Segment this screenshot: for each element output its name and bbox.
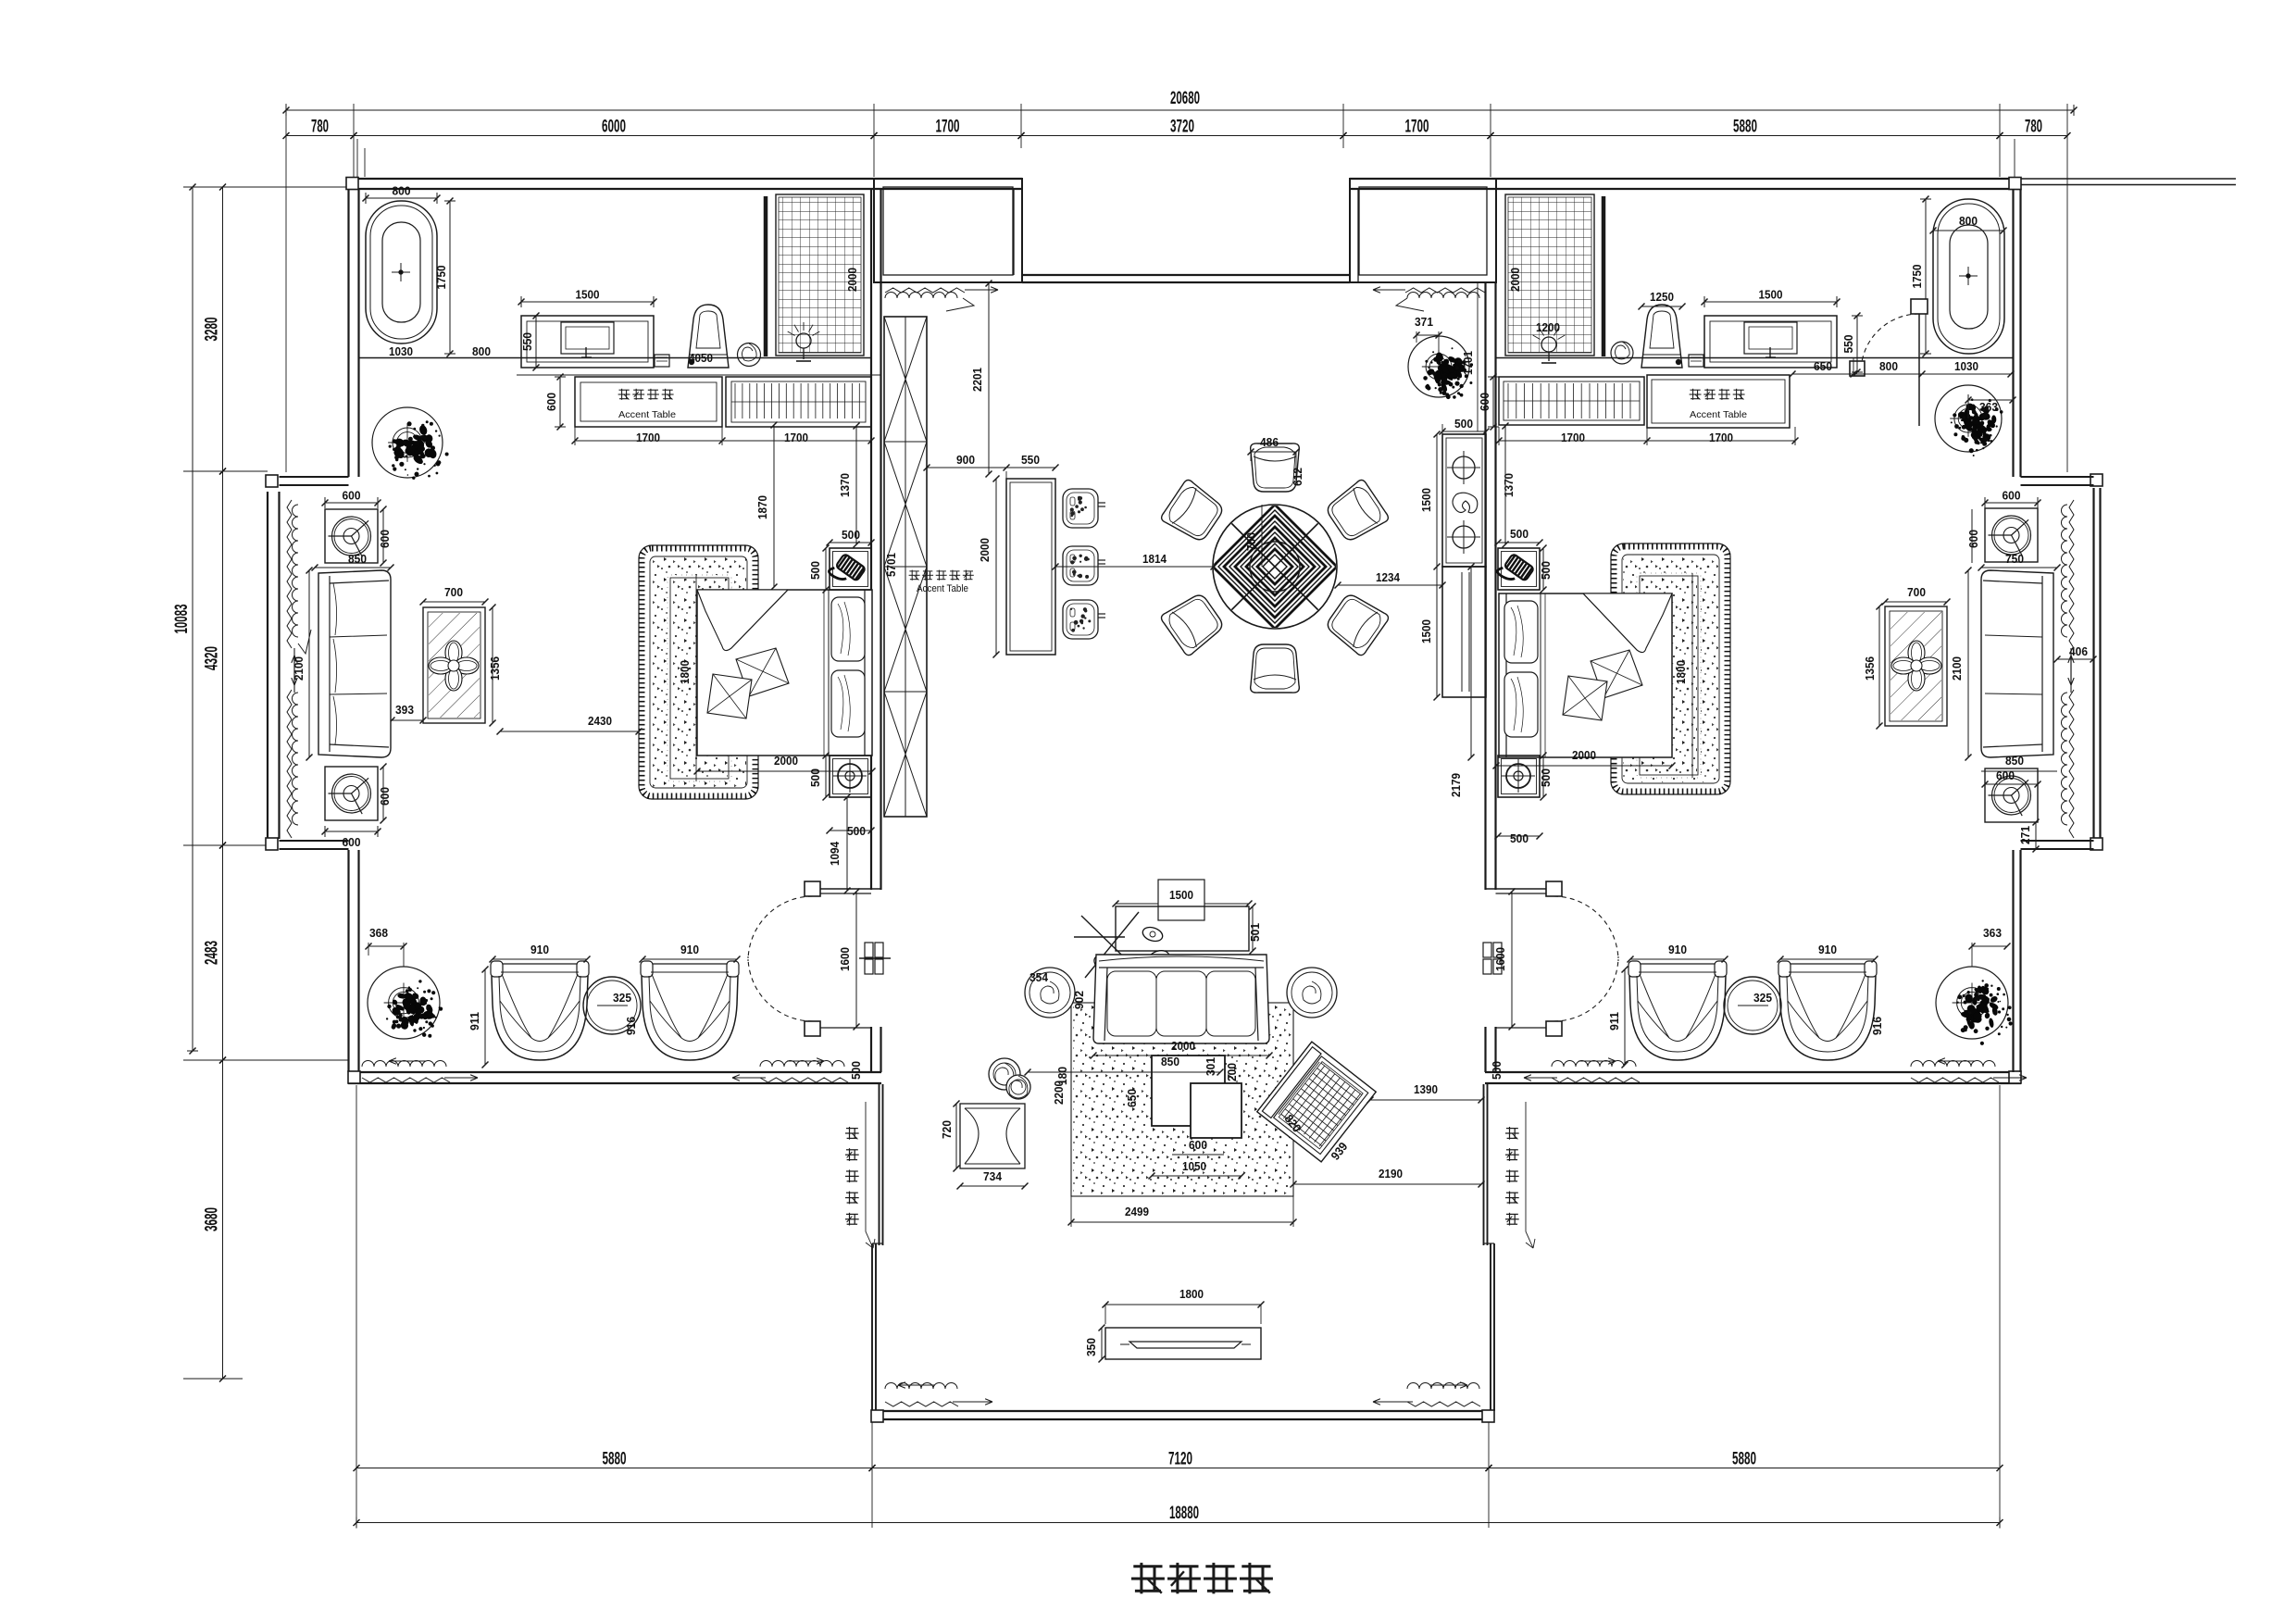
svg-text:1700: 1700 [1709, 431, 1733, 444]
svg-text:363: 363 [1983, 926, 2002, 940]
svg-text:850: 850 [2005, 754, 2024, 768]
svg-text:1814: 1814 [1142, 552, 1167, 566]
svg-text:600: 600 [1966, 530, 1980, 548]
svg-text:7120: 7120 [1168, 1449, 1192, 1469]
svg-text:5701: 5701 [884, 553, 898, 577]
svg-text:371: 371 [1415, 315, 1433, 329]
svg-text:1700: 1700 [1405, 117, 1429, 137]
svg-text:911: 911 [468, 1012, 481, 1031]
svg-text:550: 550 [520, 332, 534, 351]
svg-text:1500: 1500 [1419, 619, 1433, 643]
svg-text:301: 301 [1204, 1057, 1217, 1076]
svg-text:600: 600 [1996, 768, 2015, 782]
svg-text:406: 406 [2069, 644, 2088, 658]
svg-text:4050: 4050 [689, 351, 713, 365]
svg-text:1700: 1700 [1561, 431, 1585, 444]
svg-text:700: 700 [1244, 532, 1258, 551]
svg-text:612: 612 [1291, 468, 1304, 486]
svg-text:600: 600 [378, 787, 392, 806]
svg-text:363: 363 [1979, 400, 1998, 414]
svg-text:501: 501 [1248, 923, 1262, 942]
svg-text:2000: 2000 [1508, 268, 1522, 292]
svg-text:2100: 2100 [1950, 656, 1964, 681]
svg-text:500: 500 [842, 528, 860, 542]
svg-text:850: 850 [348, 552, 367, 566]
svg-text:2179: 2179 [1449, 773, 1463, 797]
svg-text:1234: 1234 [1376, 570, 1401, 584]
svg-text:850: 850 [1161, 1055, 1179, 1068]
svg-text:750: 750 [2005, 552, 2024, 566]
svg-text:1600: 1600 [1493, 947, 1507, 971]
svg-text:1370: 1370 [1502, 473, 1516, 497]
svg-text:2100: 2100 [292, 656, 306, 681]
svg-text:1870: 1870 [755, 495, 769, 519]
svg-text:2000: 2000 [774, 754, 798, 768]
svg-text:910: 910 [1668, 943, 1687, 956]
svg-text:1030: 1030 [389, 344, 413, 358]
svg-text:600: 600 [1478, 393, 1491, 411]
svg-text:3680: 3680 [202, 1207, 222, 1231]
svg-text:700: 700 [1907, 585, 1926, 599]
svg-text:902: 902 [1072, 991, 1086, 1009]
svg-text:5880: 5880 [1733, 117, 1757, 137]
svg-text:550: 550 [1021, 453, 1040, 467]
svg-text:5880: 5880 [1732, 1449, 1756, 1469]
svg-text:1700: 1700 [636, 431, 660, 444]
svg-text:2201: 2201 [970, 368, 984, 392]
svg-text:1800: 1800 [1179, 1287, 1204, 1301]
svg-text:180: 180 [1055, 1067, 1069, 1085]
svg-text:600: 600 [343, 489, 361, 503]
svg-text:2190: 2190 [1379, 1167, 1403, 1181]
svg-text:500: 500 [1539, 768, 1553, 787]
svg-text:2000: 2000 [1171, 1039, 1195, 1053]
svg-text:2430: 2430 [588, 714, 612, 728]
svg-text:600: 600 [544, 393, 558, 411]
svg-text:2000: 2000 [845, 268, 859, 292]
svg-text:2000: 2000 [978, 538, 992, 562]
svg-text:325: 325 [613, 991, 631, 1005]
svg-text:350: 350 [1084, 1338, 1098, 1356]
svg-text:354: 354 [1029, 970, 1049, 984]
svg-text:500: 500 [1510, 831, 1529, 845]
svg-text:6000: 6000 [602, 117, 626, 137]
svg-text:20680: 20680 [1170, 88, 1200, 108]
svg-text:Accent Table: Accent Table [917, 583, 968, 594]
svg-text:600: 600 [2003, 489, 2021, 503]
svg-text:780: 780 [311, 117, 329, 137]
svg-text:4320: 4320 [202, 646, 222, 670]
svg-text:800: 800 [393, 184, 411, 198]
svg-text:1356: 1356 [1863, 656, 1877, 681]
svg-text:1700: 1700 [936, 117, 960, 137]
svg-text:600: 600 [1189, 1138, 1207, 1152]
svg-text:2000: 2000 [1572, 748, 1596, 762]
svg-text:500: 500 [1454, 417, 1473, 431]
svg-text:916: 916 [624, 1017, 638, 1035]
svg-text:650: 650 [1125, 1089, 1139, 1107]
svg-text:500: 500 [808, 561, 822, 580]
svg-text:Accent Table: Accent Table [618, 409, 676, 420]
svg-text:500: 500 [1510, 527, 1529, 541]
svg-text:1050: 1050 [1182, 1159, 1206, 1173]
svg-text:700: 700 [444, 585, 463, 599]
svg-text:910: 910 [680, 943, 699, 956]
svg-text:325: 325 [1753, 991, 1772, 1005]
svg-text:3280: 3280 [202, 317, 222, 341]
svg-text:780: 780 [2025, 117, 2042, 137]
svg-text:1356: 1356 [488, 656, 502, 681]
svg-text:734: 734 [983, 1169, 1003, 1183]
svg-text:600: 600 [343, 835, 361, 849]
svg-text:1030: 1030 [1954, 359, 1978, 373]
svg-text:1500: 1500 [576, 288, 600, 302]
svg-text:1250: 1250 [1650, 290, 1674, 304]
svg-text:550: 550 [1841, 335, 1855, 354]
svg-text:916: 916 [1870, 1017, 1884, 1035]
svg-text:1500: 1500 [1419, 488, 1433, 512]
svg-text:1600: 1600 [838, 947, 852, 971]
svg-text:486: 486 [1260, 435, 1279, 449]
svg-text:650: 650 [1814, 359, 1832, 373]
svg-text:1800: 1800 [678, 660, 692, 684]
svg-text:500: 500 [1539, 561, 1553, 580]
svg-text:1094: 1094 [828, 841, 842, 866]
svg-text:500: 500 [1490, 1061, 1504, 1080]
svg-text:1700: 1700 [784, 431, 808, 444]
svg-text:10083: 10083 [171, 604, 192, 633]
svg-text:18880: 18880 [1169, 1503, 1199, 1523]
svg-text:5880: 5880 [603, 1449, 627, 1469]
svg-text:910: 910 [530, 943, 549, 956]
svg-text:500: 500 [849, 1061, 863, 1080]
svg-text:911: 911 [1607, 1012, 1621, 1031]
svg-text:1750: 1750 [434, 266, 448, 290]
svg-text:2499: 2499 [1125, 1205, 1149, 1218]
svg-text:393: 393 [395, 703, 414, 717]
svg-text:2483: 2483 [202, 941, 222, 965]
svg-text:1390: 1390 [1414, 1082, 1438, 1096]
svg-text:900: 900 [956, 453, 975, 467]
svg-text:500: 500 [808, 768, 822, 787]
svg-text:3720: 3720 [1170, 117, 1194, 137]
svg-text:1800: 1800 [1674, 660, 1688, 684]
svg-text:Accent Table: Accent Table [1690, 409, 1747, 420]
svg-text:800: 800 [472, 344, 491, 358]
svg-text:200: 200 [1225, 1063, 1239, 1081]
svg-text:1370: 1370 [838, 473, 852, 497]
svg-text:1500: 1500 [1169, 888, 1193, 902]
svg-text:910: 910 [1818, 943, 1837, 956]
svg-text:368: 368 [369, 926, 388, 940]
svg-text:1500: 1500 [1759, 288, 1783, 302]
svg-text:800: 800 [1879, 359, 1898, 373]
svg-text:800: 800 [1959, 214, 1978, 228]
svg-text:271: 271 [2018, 826, 2032, 844]
svg-text:1750: 1750 [1910, 265, 1924, 289]
svg-text:720: 720 [940, 1120, 954, 1139]
svg-text:1701: 1701 [1461, 351, 1475, 375]
svg-text:600: 600 [378, 530, 392, 548]
